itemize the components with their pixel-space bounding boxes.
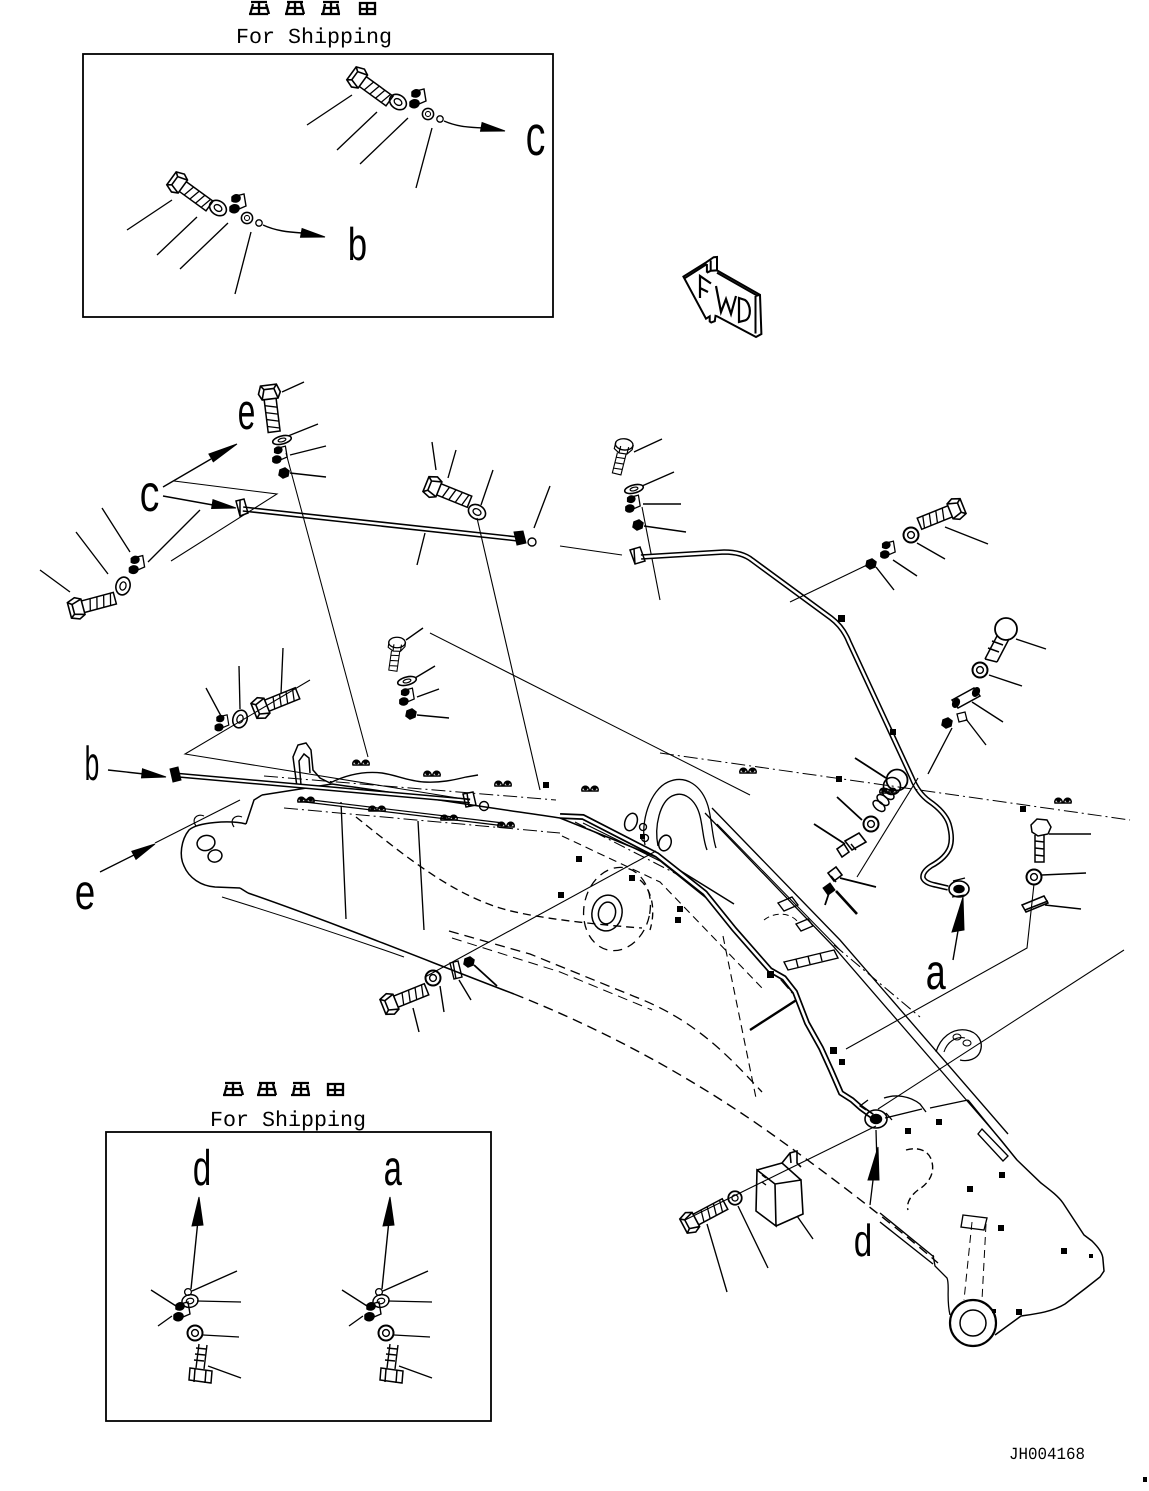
svg-text:For Shipping: For Shipping — [210, 1109, 366, 1133]
svg-text:b: b — [84, 741, 100, 795]
svg-text:a: a — [925, 948, 947, 1005]
svg-text:c: c — [525, 109, 547, 173]
svg-text:a: a — [383, 1144, 403, 1201]
svg-text:JH004168: JH004168 — [1009, 1446, 1085, 1465]
svg-text:d: d — [853, 1219, 873, 1270]
svg-text:d: d — [192, 1144, 212, 1201]
svg-text:e: e — [74, 868, 96, 925]
svg-text:e: e — [237, 388, 256, 445]
svg-text:For Shipping: For Shipping — [236, 26, 392, 50]
svg-text:c: c — [139, 468, 161, 527]
svg-text:b: b — [347, 222, 368, 274]
